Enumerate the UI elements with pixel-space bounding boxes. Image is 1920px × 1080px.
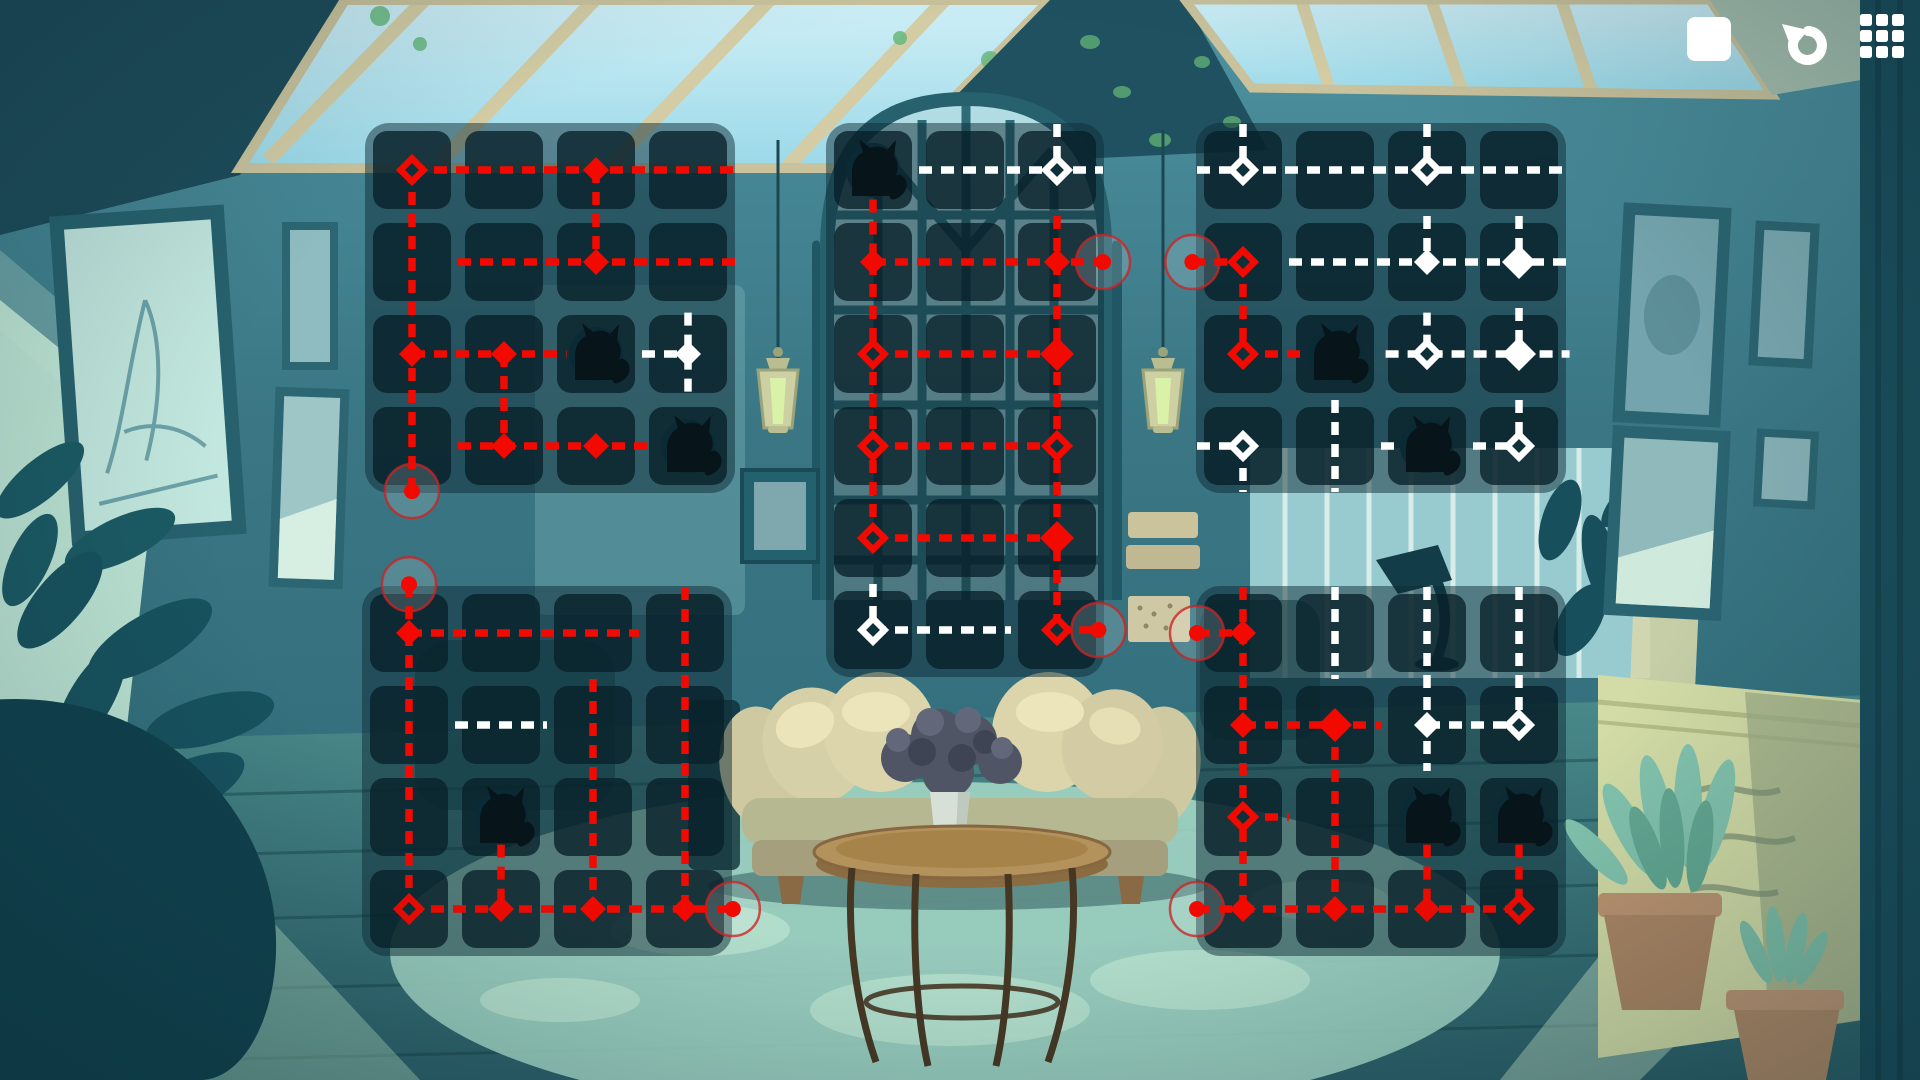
grid-cell[interactable] xyxy=(554,594,632,672)
grid-cell[interactable] xyxy=(370,594,448,672)
grid-cell[interactable] xyxy=(834,591,912,669)
grid-cell[interactable] xyxy=(649,315,727,393)
grid-cell[interactable] xyxy=(649,223,727,301)
grid-cell[interactable] xyxy=(373,315,451,393)
puzzle-grid-1[interactable] xyxy=(365,123,735,493)
grid-cell[interactable] xyxy=(1296,223,1374,301)
grid-cell[interactable] xyxy=(1388,315,1466,393)
grid-cell[interactable] xyxy=(1296,131,1374,209)
grid-cell[interactable] xyxy=(370,870,448,948)
grid-cell[interactable] xyxy=(1480,778,1558,856)
grid-cell[interactable] xyxy=(1018,591,1096,669)
grid-cell[interactable] xyxy=(462,870,540,948)
grid-cell[interactable] xyxy=(926,499,1004,577)
grid-cell[interactable] xyxy=(554,870,632,948)
grid-cell[interactable] xyxy=(1388,778,1466,856)
grid-cell[interactable] xyxy=(1388,131,1466,209)
grid-cell[interactable] xyxy=(1296,407,1374,485)
grid-cell[interactable] xyxy=(465,407,543,485)
grid-cell[interactable] xyxy=(646,594,724,672)
grid-cell[interactable] xyxy=(649,407,727,485)
grid-cell[interactable] xyxy=(1018,315,1096,393)
grid-cell[interactable] xyxy=(370,778,448,856)
menu-button[interactable] xyxy=(1855,9,1909,63)
grid-cell[interactable] xyxy=(557,315,635,393)
grid-cell[interactable] xyxy=(1018,499,1096,577)
grid-cell[interactable] xyxy=(926,315,1004,393)
grid-cell[interactable] xyxy=(1018,407,1096,485)
grid-cell[interactable] xyxy=(373,407,451,485)
grid-cell[interactable] xyxy=(1204,223,1282,301)
grid-cell[interactable] xyxy=(465,223,543,301)
grid-cell[interactable] xyxy=(370,686,448,764)
grid-cell[interactable] xyxy=(1388,407,1466,485)
grid-cell[interactable] xyxy=(554,686,632,764)
stop-square-icon xyxy=(1685,14,1733,62)
grid-cell[interactable] xyxy=(1204,594,1282,672)
grid-cell[interactable] xyxy=(926,407,1004,485)
grid-cell[interactable] xyxy=(465,131,543,209)
cell-grid xyxy=(1196,123,1566,493)
grid-cell[interactable] xyxy=(557,407,635,485)
stop-button[interactable] xyxy=(1682,11,1736,65)
grid-cell[interactable] xyxy=(1388,686,1466,764)
grid-cell[interactable] xyxy=(646,686,724,764)
grid-cell[interactable] xyxy=(1480,407,1558,485)
puzzle-grid-5[interactable] xyxy=(1196,586,1566,956)
puzzle-grid-3[interactable] xyxy=(1196,123,1566,493)
grid-cell[interactable] xyxy=(646,778,724,856)
grid-cell[interactable] xyxy=(462,594,540,672)
grid-cell[interactable] xyxy=(1480,686,1558,764)
grid-cell[interactable] xyxy=(1018,131,1096,209)
grid-cell[interactable] xyxy=(1388,594,1466,672)
grid-cell[interactable] xyxy=(1480,223,1558,301)
cell-grid xyxy=(362,586,732,956)
grid-cell[interactable] xyxy=(1204,870,1282,948)
undo-button[interactable] xyxy=(1777,16,1831,70)
grid-cell[interactable] xyxy=(1388,223,1466,301)
grid-cell[interactable] xyxy=(1480,131,1558,209)
grid-cell[interactable] xyxy=(1296,594,1374,672)
grid-cell[interactable] xyxy=(926,223,1004,301)
grid-cell[interactable] xyxy=(557,131,635,209)
undo-arrow-icon xyxy=(1778,18,1830,68)
grid-cell[interactable] xyxy=(834,223,912,301)
grid-cell[interactable] xyxy=(1204,407,1282,485)
grid-cell[interactable] xyxy=(1296,315,1374,393)
grid-cell[interactable] xyxy=(834,407,912,485)
cell-grid xyxy=(365,123,735,493)
grid-cell[interactable] xyxy=(462,778,540,856)
grid-cell[interactable] xyxy=(834,315,912,393)
puzzle-grid-2[interactable] xyxy=(826,123,1104,677)
grid-cell[interactable] xyxy=(834,499,912,577)
grid-cell[interactable] xyxy=(1018,223,1096,301)
game-screen xyxy=(0,0,1920,1080)
cell-grid xyxy=(1196,586,1566,956)
puzzle-grid-4[interactable] xyxy=(362,586,732,956)
cell-grid xyxy=(826,123,1104,677)
grid-cell[interactable] xyxy=(554,778,632,856)
grid-cell[interactable] xyxy=(1204,778,1282,856)
grid-cell[interactable] xyxy=(646,870,724,948)
grid-cell[interactable] xyxy=(1204,131,1282,209)
grid-cell[interactable] xyxy=(557,223,635,301)
grid-cell[interactable] xyxy=(1296,686,1374,764)
grid-cell[interactable] xyxy=(649,131,727,209)
grid-cell[interactable] xyxy=(1480,870,1558,948)
grid-menu-icon xyxy=(1858,12,1906,60)
grid-cell[interactable] xyxy=(465,315,543,393)
grid-cell[interactable] xyxy=(1296,870,1374,948)
grid-cell[interactable] xyxy=(1388,870,1466,948)
grid-cell[interactable] xyxy=(462,686,540,764)
grid-cell[interactable] xyxy=(1480,315,1558,393)
puzzle-board-layer xyxy=(0,0,1920,1080)
grid-cell[interactable] xyxy=(1296,778,1374,856)
grid-cell[interactable] xyxy=(1480,594,1558,672)
grid-cell[interactable] xyxy=(834,131,912,209)
grid-cell[interactable] xyxy=(926,591,1004,669)
grid-cell[interactable] xyxy=(926,131,1004,209)
grid-cell[interactable] xyxy=(373,131,451,209)
grid-cell[interactable] xyxy=(1204,686,1282,764)
grid-cell[interactable] xyxy=(1204,315,1282,393)
grid-cell[interactable] xyxy=(373,223,451,301)
